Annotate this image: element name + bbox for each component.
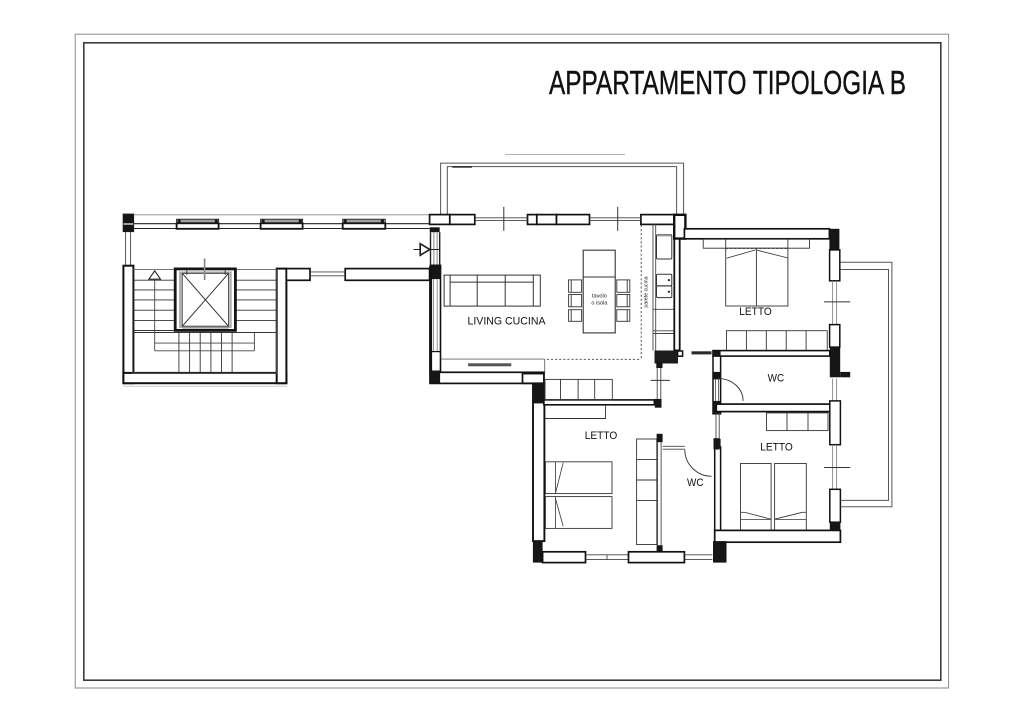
svg-text:LIVING CUCINA: LIVING CUCINA [468,315,546,327]
svg-text:LETTO: LETTO [585,430,618,442]
svg-text:LETTO: LETTO [739,306,772,318]
svg-text:WC: WC [687,477,704,489]
svg-text:tavolo: tavolo [592,294,607,300]
svg-text:APPARTAMENTO TIPOLOGIA B: APPARTAMENTO TIPOLOGIA B [549,65,906,102]
svg-text:LETTO: LETTO [760,442,793,454]
svg-text:WC: WC [768,373,785,385]
svg-text:o isola: o isola [591,301,608,307]
svg-text:parete cucina: parete cucina [644,276,650,307]
